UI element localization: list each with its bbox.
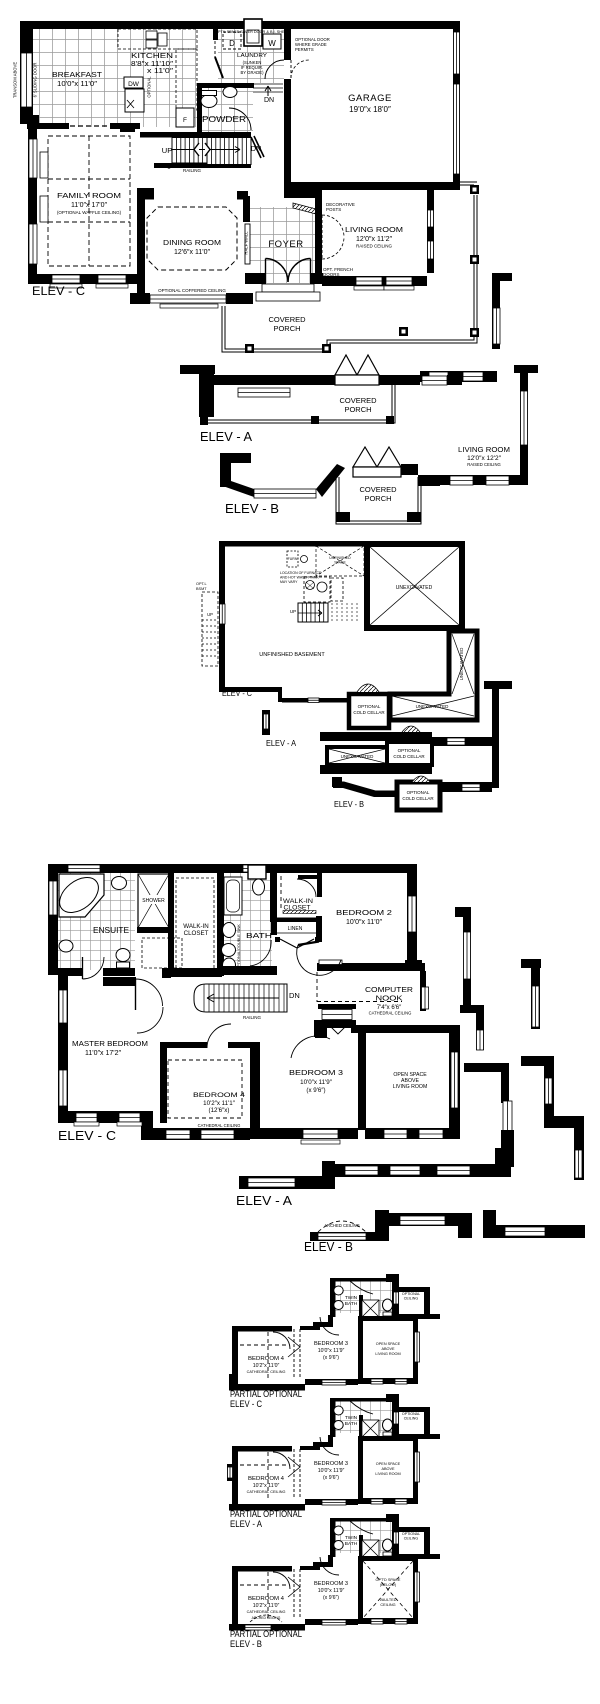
svg-text:W: W (268, 39, 276, 48)
svg-text:BATH: BATH (345, 1541, 358, 1547)
svg-text:TRANSOM ABOVE: TRANSOM ABOVE (13, 62, 18, 99)
svg-text:UNFINISHED: UNFINISHED (329, 556, 351, 560)
svg-text:COVERED: COVERED (359, 485, 397, 494)
svg-text:11'0″x 17'2″: 11'0″x 17'2″ (85, 1050, 121, 1057)
svg-text:CEILING: CEILING (404, 1297, 419, 1301)
svg-text:BEDROOM 3: BEDROOM 3 (314, 1461, 348, 1467)
svg-text:COVERED: COVERED (339, 396, 377, 405)
svg-text:BEDROOM 4: BEDROOM 4 (248, 1596, 285, 1602)
svg-text:ELEV - A: ELEV - A (266, 739, 297, 748)
svg-text:CATHEDRAL CEILING: CATHEDRAL CEILING (198, 1123, 241, 1128)
svg-text:UP: UP (207, 612, 213, 617)
svg-text:UNEXCAVATED: UNEXCAVATED (416, 704, 450, 709)
svg-text:12'0″x 12'2″: 12'0″x 12'2″ (467, 455, 502, 462)
svg-text:LIVING ROOM: LIVING ROOM (393, 1084, 428, 1090)
svg-text:CATHEDRAL CEILING: CATHEDRAL CEILING (369, 1011, 412, 1016)
svg-text:COLD CELLAR: COLD CELLAR (402, 796, 434, 801)
svg-text:RAISED CEILING: RAISED CEILING (467, 462, 501, 467)
svg-text:OPTIONAL DOUBLE SINK: OPTIONAL DOUBLE SINK (237, 924, 241, 970)
svg-text:ELEV - C: ELEV - C (230, 1399, 262, 1410)
svg-text:MAY VARY: MAY VARY (280, 580, 298, 584)
svg-text:ELEV - C: ELEV - C (222, 689, 252, 698)
svg-text:ABOVE: ABOVE (381, 1347, 395, 1351)
svg-text:LIVING ROOM: LIVING ROOM (345, 225, 403, 234)
svg-text:VAULTED: VAULTED (380, 1598, 397, 1602)
svg-text:F: F (183, 117, 187, 124)
svg-text:BEDROOM 4: BEDROOM 4 (193, 1092, 245, 1099)
svg-text:DW: DW (128, 81, 140, 88)
svg-text:OPT'D SPACE: OPT'D SPACE (376, 1578, 401, 1582)
svg-text:LIVING ROOM: LIVING ROOM (458, 447, 510, 454)
svg-text:BREAKFAST: BREAKFAST (52, 70, 102, 79)
svg-text:UNEXCAVATED: UNEXCAVATED (459, 647, 464, 681)
svg-text:8'8″x 11'10″: 8'8″x 11'10″ (131, 61, 174, 68)
svg-text:BATH: BATH (246, 931, 272, 940)
svg-text:LAUNDRY: LAUNDRY (237, 53, 268, 59)
svg-text:DOORS: DOORS (323, 272, 340, 277)
svg-text:12'0″x 11'2″: 12'0″x 11'2″ (356, 236, 392, 243)
svg-text:COVERED: COVERED (268, 315, 306, 324)
svg-text:10'0″x 11'9″: 10'0″x 11'9″ (318, 1348, 345, 1354)
svg-text:ELEV - A: ELEV - A (230, 1519, 263, 1530)
svg-text:BEDROOM 4: BEDROOM 4 (248, 1476, 285, 1482)
svg-text:RAISED CEILING: RAISED CEILING (356, 244, 393, 249)
svg-text:UNEXCAVATED: UNEXCAVATED (341, 754, 375, 759)
svg-text:KITCHEN: KITCHEN (131, 51, 173, 60)
svg-text:ARCHED CEILING: ARCHED CEILING (252, 1616, 281, 1620)
svg-text:PORCH: PORCH (273, 324, 300, 333)
svg-text:FURN: FURN (288, 557, 298, 561)
svg-text:LIVING ROOM: LIVING ROOM (375, 1472, 400, 1476)
svg-text:LIVING ROOM: LIVING ROOM (375, 1352, 400, 1356)
svg-text:10'2″x 11'0″: 10'2″x 11'0″ (253, 1363, 280, 1369)
svg-text:ELEV - C: ELEV - C (32, 284, 85, 298)
svg-text:10'2″x 11'0″: 10'2″x 11'0″ (253, 1483, 280, 1489)
svg-text:10'0″x 11'0″: 10'0″x 11'0″ (346, 919, 382, 926)
svg-text:ELEV - B: ELEV - B (230, 1639, 262, 1650)
svg-text:10'0″x 11'9″: 10'0″x 11'9″ (300, 1079, 333, 1086)
svg-text:OPTIONAL COFFERED CEILING: OPTIONAL COFFERED CEILING (158, 288, 226, 293)
svg-text:DN: DN (289, 991, 300, 1000)
svg-text:CLOSET: CLOSET (184, 930, 209, 937)
svg-text:BATH: BATH (345, 1301, 358, 1307)
svg-text:WALK-IN: WALK-IN (283, 899, 313, 905)
svg-text:BEDROOM 3: BEDROOM 3 (314, 1341, 348, 1347)
svg-text:GARAGE: GARAGE (348, 93, 392, 104)
svg-text:BSMT: BSMT (196, 587, 207, 591)
svg-text:RAILING: RAILING (243, 1015, 262, 1020)
svg-text:COLD CELLAR: COLD CELLAR (393, 754, 425, 759)
svg-text:PORCH: PORCH (364, 494, 391, 503)
svg-text:(x 9'6″): (x 9'6″) (323, 1475, 339, 1481)
svg-text:TWIN: TWIN (345, 1535, 358, 1541)
svg-text:OPTIONAL: OPTIONAL (358, 704, 381, 709)
svg-text:CATHEDRAL CEILING: CATHEDRAL CEILING (247, 1370, 286, 1374)
svg-text:FOYER: FOYER (268, 239, 303, 250)
svg-text:ENSUITE: ENSUITE (93, 926, 129, 935)
svg-text:ELEV - B: ELEV - B (334, 800, 364, 809)
svg-text:10'2″x 11'0″: 10'2″x 11'0″ (253, 1603, 280, 1609)
svg-text:BY GRADE): BY GRADE) (241, 70, 265, 75)
svg-text:ELEV - B: ELEV - B (304, 1240, 353, 1254)
svg-text:OPT.L: OPT.L (196, 582, 207, 586)
svg-text:MASTER BEDROOM: MASTER BEDROOM (72, 1039, 148, 1048)
svg-text:(BELOW): (BELOW) (380, 1583, 397, 1587)
svg-text:COMPUTER: COMPUTER (365, 987, 413, 994)
svg-text:POWDER: POWDER (202, 114, 246, 124)
svg-text:OPT'L SPACE SAVER DOOR & B.I.: OPT'L SPACE SAVER DOOR & B.I. SHELF (215, 30, 290, 34)
svg-text:12'6″x 11'0″: 12'6″x 11'0″ (174, 249, 210, 256)
svg-text:OPTIONAL: OPTIONAL (147, 76, 152, 98)
svg-text:OPTIONAL: OPTIONAL (398, 748, 421, 753)
svg-text:x 11'0″: x 11'0″ (147, 68, 174, 75)
svg-text:BEDROOM 3: BEDROOM 3 (314, 1581, 348, 1587)
svg-text:OPEN SPACE: OPEN SPACE (376, 1462, 401, 1466)
svg-text:(x 9'6″): (x 9'6″) (323, 1355, 339, 1361)
svg-text:BEDROOM 3: BEDROOM 3 (289, 1070, 343, 1077)
svg-text:DN: DN (264, 97, 274, 104)
svg-text:10'0″x 11'9″: 10'0″x 11'9″ (318, 1588, 345, 1594)
svg-text:BEDROOM 2: BEDROOM 2 (336, 908, 392, 917)
svg-text:UNEXCAVATED: UNEXCAVATED (396, 585, 433, 591)
svg-text:(x 9'6″): (x 9'6″) (306, 1087, 325, 1094)
svg-text:WALK-IN: WALK-IN (183, 923, 209, 930)
svg-text:UP: UP (162, 146, 172, 155)
svg-text:10'0″x 11'9″: 10'0″x 11'9″ (318, 1468, 345, 1474)
svg-text:ELEV - A: ELEV - A (200, 430, 253, 444)
svg-text:TWIN: TWIN (345, 1295, 358, 1301)
svg-text:BEDROOM 4: BEDROOM 4 (248, 1356, 285, 1362)
svg-text:PERMITS: PERMITS (295, 47, 314, 52)
svg-text:OPTIONAL: OPTIONAL (402, 1412, 420, 1416)
svg-text:ABOVE: ABOVE (381, 1467, 395, 1471)
svg-text:OPTIONAL: OPTIONAL (402, 1532, 420, 1536)
svg-text:(12'6″x): (12'6″x) (209, 1107, 230, 1114)
svg-text:CEILING: CEILING (380, 1603, 395, 1607)
svg-text:(x 9'6″): (x 9'6″) (323, 1595, 339, 1601)
svg-text:DINING ROOM: DINING ROOM (163, 238, 221, 247)
svg-text:PORCH: PORCH (344, 405, 371, 414)
svg-text:TWIN: TWIN (345, 1415, 358, 1421)
svg-text:COLD CELLAR: COLD CELLAR (353, 710, 385, 715)
svg-text:BATH: BATH (345, 1421, 358, 1427)
svg-text:ELEV - C: ELEV - C (58, 1129, 116, 1143)
svg-text:CEILING: CEILING (404, 1537, 419, 1541)
svg-text:SHOWER: SHOWER (142, 898, 165, 904)
svg-text:POSTS: POSTS (326, 207, 341, 212)
svg-text:(OPTIONAL WAFFLE CEILING): (OPTIONAL WAFFLE CEILING) (57, 210, 122, 215)
svg-text:UP: UP (290, 609, 296, 614)
svg-text:OPEN SPACE: OPEN SPACE (376, 1342, 401, 1346)
svg-text:ELEV - B: ELEV - B (225, 502, 279, 516)
svg-text:FAMILY ROOM: FAMILY ROOM (57, 191, 121, 200)
svg-text:SPACE: SPACE (334, 561, 346, 565)
svg-text:CATHEDRAL CEILING: CATHEDRAL CEILING (247, 1490, 286, 1494)
svg-text:19'0″x 18'0″: 19'0″x 18'0″ (349, 105, 391, 114)
svg-text:RAILING: RAILING (183, 168, 202, 173)
svg-text:OPTIONAL: OPTIONAL (402, 1292, 420, 1296)
svg-text:OPTIONAL: OPTIONAL (407, 790, 430, 795)
svg-text:CEILING: CEILING (404, 1417, 419, 1421)
svg-text:HALF WALL: HALF WALL (244, 231, 249, 255)
svg-text:UNFINISHED BASEMENT: UNFINISHED BASEMENT (259, 652, 325, 658)
svg-text:LINEN: LINEN (288, 926, 303, 932)
svg-text:D: D (229, 39, 235, 48)
svg-text:ARCHED CEILING: ARCHED CEILING (324, 1223, 360, 1228)
svg-text:6' SLIDING DOOR: 6' SLIDING DOOR (33, 63, 38, 98)
svg-text:10'2″x 11'1″: 10'2″x 11'1″ (203, 1100, 236, 1107)
svg-text:11'0″x 17'0″: 11'0″x 17'0″ (71, 202, 107, 209)
svg-text:CATHEDRAL CEILING: CATHEDRAL CEILING (247, 1610, 286, 1614)
svg-text:AND HOT WATER TANK: AND HOT WATER TANK (280, 576, 320, 580)
svg-text:10'0″x 11'0″: 10'0″x 11'0″ (57, 81, 98, 88)
svg-text:ELEV - A: ELEV - A (236, 1194, 293, 1208)
